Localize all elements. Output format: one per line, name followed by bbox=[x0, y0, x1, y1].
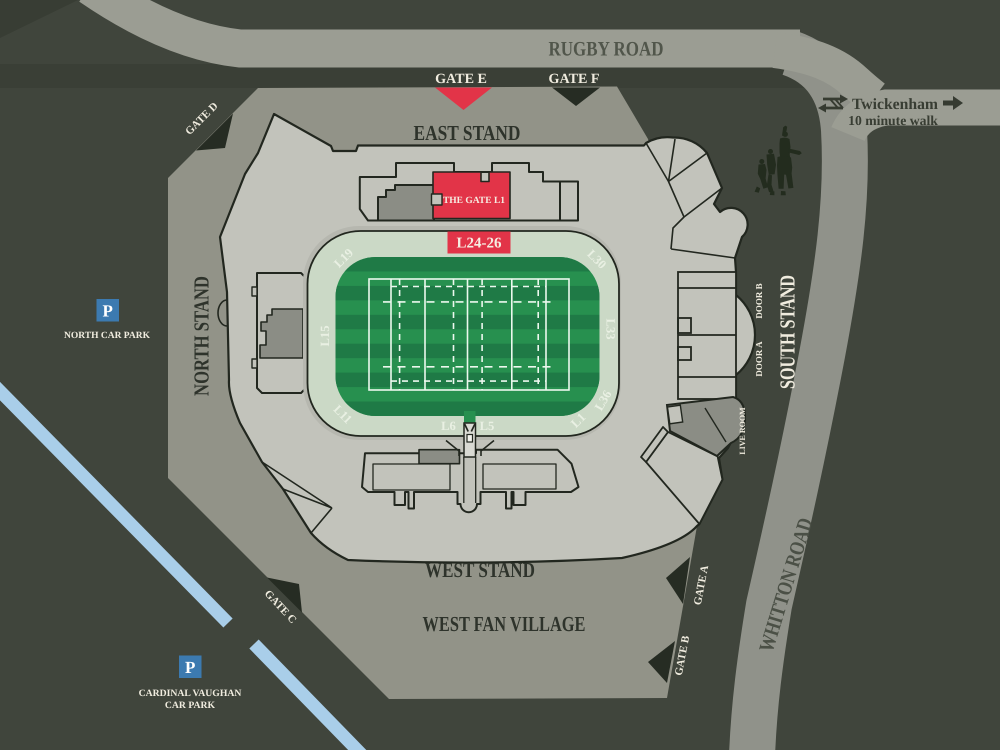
svg-text:WEST STAND: WEST STAND bbox=[425, 559, 535, 583]
svg-text:EAST STAND: EAST STAND bbox=[414, 122, 521, 146]
svg-text:LIVE ROOM: LIVE ROOM bbox=[738, 407, 747, 455]
svg-text:L24-26: L24-26 bbox=[457, 236, 503, 252]
svg-text:L15: L15 bbox=[318, 326, 332, 347]
svg-text:CAR PARK: CAR PARK bbox=[165, 700, 216, 711]
svg-text:DOOR B: DOOR B bbox=[754, 283, 764, 318]
svg-text:10 minute walk: 10 minute walk bbox=[848, 113, 938, 128]
svg-text:WEST FAN VILLAGE: WEST FAN VILLAGE bbox=[423, 613, 586, 637]
svg-text:CARDINAL VAUGHAN: CARDINAL VAUGHAN bbox=[139, 688, 242, 699]
svg-text:NORTH STAND: NORTH STAND bbox=[190, 276, 214, 396]
svg-text:DOOR A: DOOR A bbox=[754, 341, 764, 377]
svg-text:P: P bbox=[103, 302, 113, 321]
svg-text:RUGBY ROAD: RUGBY ROAD bbox=[549, 38, 664, 61]
svg-text:GATE E: GATE E bbox=[435, 71, 487, 87]
svg-text:L5: L5 bbox=[480, 419, 495, 433]
svg-text:THE GATE L1: THE GATE L1 bbox=[443, 196, 505, 206]
svg-text:SOUTH STAND: SOUTH STAND bbox=[776, 275, 800, 389]
svg-text:P: P bbox=[185, 658, 195, 677]
svg-text:L33: L33 bbox=[604, 319, 618, 340]
svg-text:Twickenham: Twickenham bbox=[852, 96, 938, 113]
svg-text:L6: L6 bbox=[441, 419, 456, 433]
svg-text:GATE F: GATE F bbox=[548, 71, 599, 87]
svg-text:NORTH CAR PARK: NORTH CAR PARK bbox=[64, 331, 151, 341]
